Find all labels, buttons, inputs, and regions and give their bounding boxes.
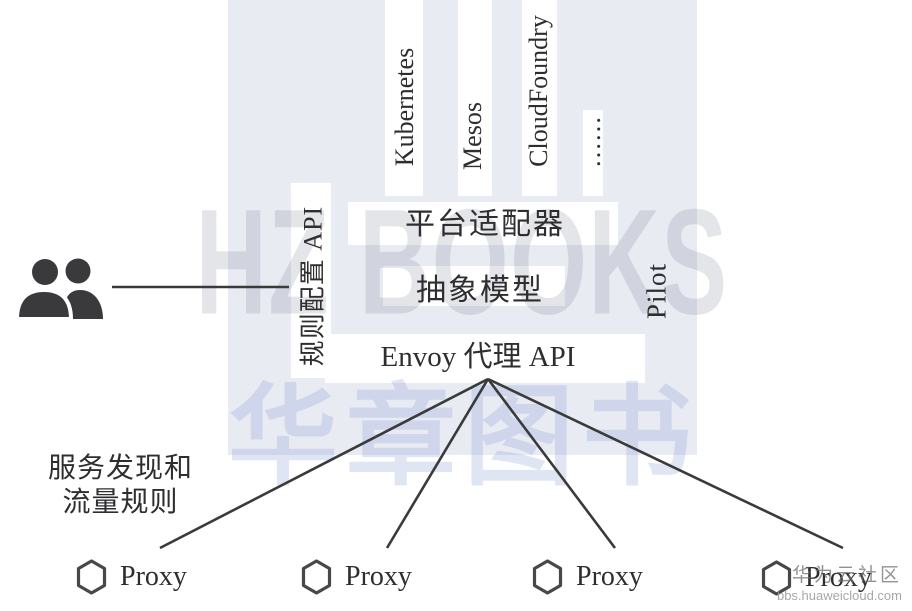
rule-config-api-label: 规则配置 API <box>293 206 330 366</box>
proxy-label: Proxy <box>576 558 643 596</box>
proxy-node-1: Proxy <box>76 558 187 596</box>
hexagon-icon <box>301 559 332 595</box>
abstract-model-label: 抽象模型 <box>416 265 544 309</box>
proxy-node-2: Proxy <box>301 558 412 596</box>
pilot-label: Pilot <box>642 263 673 319</box>
envoy-proxy-api-label: Envoy 代理 API <box>381 333 576 375</box>
platform-label-mesos: Mesos <box>458 102 488 170</box>
proxy-node-3: Proxy <box>532 558 643 596</box>
service-discovery-annotation: 服务发现和 流量规则 <box>28 452 213 520</box>
platform-label-ellipsis: …… <box>577 116 607 168</box>
hexagon-icon <box>532 559 563 595</box>
community-watermark-name: 华为云社区 <box>777 560 902 587</box>
service-discovery-line2: 流量规则 <box>28 486 213 520</box>
service-discovery-line1: 服务发现和 <box>28 452 213 486</box>
community-watermark-url: bbs.huaweicloud.com <box>777 588 902 603</box>
community-watermark: 华为云社区 bbs.huaweicloud.com <box>777 560 902 603</box>
hexagon-icon <box>76 559 107 595</box>
platform-label-cloudfoundry: CloudFoundry <box>524 15 554 167</box>
platform-label-kubernetes: Kubernetes <box>390 48 420 166</box>
pilot-architecture-diagram: HZ BOOKS 华章图书 Kubernetes Mesos CloudFoun… <box>0 0 912 611</box>
proxy-label: Proxy <box>345 558 412 596</box>
proxy-label: Proxy <box>120 558 187 596</box>
people-icon <box>14 256 106 320</box>
platform-adapter-label: 平台适配器 <box>405 199 565 243</box>
